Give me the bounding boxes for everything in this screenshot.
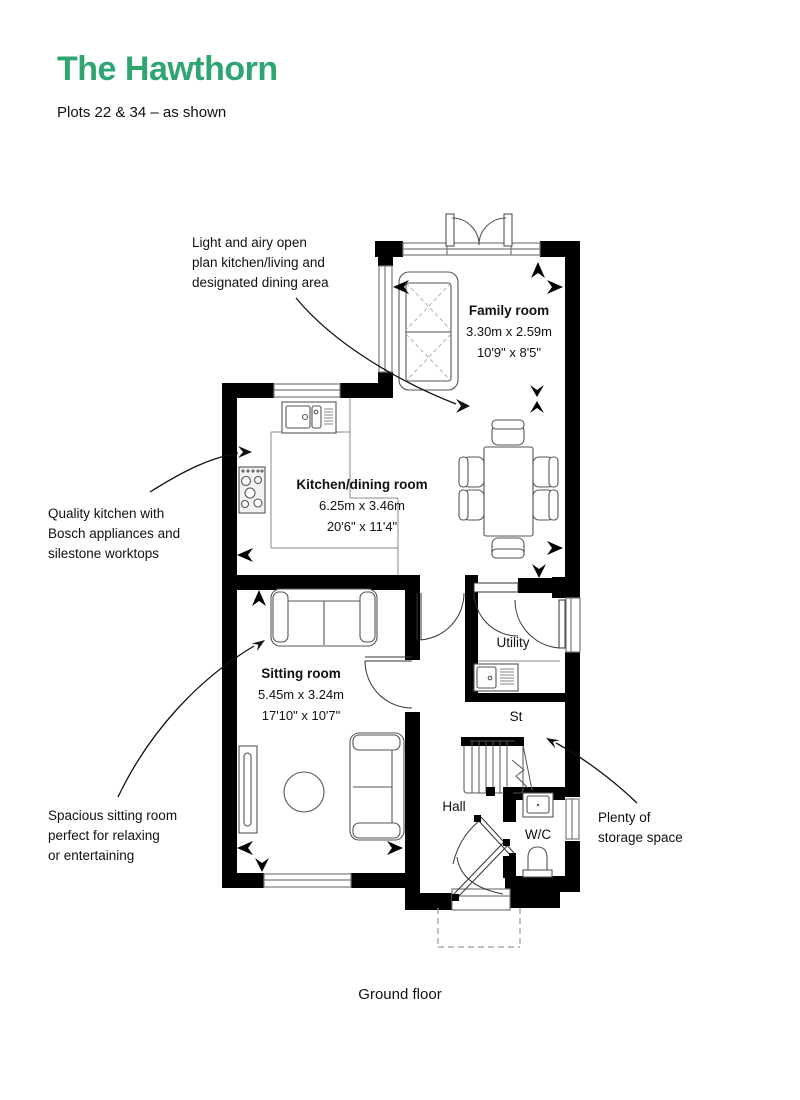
- window-family-left: [379, 266, 392, 372]
- dining-table: [459, 420, 558, 558]
- porch-outline: [438, 908, 520, 947]
- annotation-kitchen-quality: Quality kitchen with Bosch appliances an…: [48, 504, 180, 564]
- wc-basin: [523, 793, 553, 817]
- entrance-door-sill: [452, 889, 510, 910]
- annotation-open-plan: Light and airy open plan kitchen/living …: [192, 233, 329, 293]
- window-sitting: [264, 874, 351, 887]
- door-utility: [474, 583, 518, 636]
- window-kitchen: [274, 384, 340, 397]
- kitchen-metric: 6.25m x 3.46m: [296, 495, 427, 516]
- window-wc: [566, 799, 579, 839]
- family-room-imperial: 10'9" x 8'5": [466, 342, 552, 363]
- french-doors: [446, 214, 512, 246]
- window-family-top: [403, 243, 540, 255]
- annotation-sitting-space: Spacious sitting room perfect for relaxi…: [48, 806, 177, 866]
- label-kitchen: Kitchen/dining room 6.25m x 3.46m 20'6" …: [296, 474, 427, 537]
- door-kitchen-hall: [417, 593, 464, 640]
- coffee-table: [284, 772, 324, 812]
- brochure-page: The Hawthorn Plots 22 & 34 – as shown: [0, 0, 800, 1100]
- kitchen-name: Kitchen/dining room: [296, 474, 427, 495]
- label-store: St: [510, 709, 523, 724]
- annotation-arrows: [118, 298, 637, 803]
- kitchen-imperial: 20'6" x 11'4": [296, 516, 427, 537]
- sitting-room-imperial: 17'10" x 10'7": [258, 705, 344, 726]
- label-utility: Utility: [497, 635, 530, 650]
- kitchen-sink: [282, 402, 336, 433]
- family-room-metric: 3.30m x 2.59m: [466, 321, 552, 342]
- family-sofa: [399, 272, 458, 390]
- label-hall: Hall: [442, 799, 465, 814]
- door-frame-utility-external: [566, 598, 580, 652]
- hob: [239, 467, 265, 513]
- wc-toilet: [523, 847, 552, 877]
- door-sitting: [365, 657, 412, 708]
- sitting-room-name: Sitting room: [258, 663, 344, 684]
- annotation-storage: Plenty of storage space: [598, 808, 683, 848]
- sitting-sofa-right: [350, 733, 404, 840]
- sitting-room-metric: 5.45m x 3.24m: [258, 684, 344, 705]
- sitting-sofa-top: [271, 589, 377, 646]
- floor-label: Ground floor: [358, 986, 441, 1003]
- family-room-name: Family room: [466, 300, 552, 321]
- utility-sink: [474, 661, 560, 691]
- label-sitting-room: Sitting room 5.45m x 3.24m 17'10" x 10'7…: [258, 663, 344, 726]
- label-wc: W/C: [525, 827, 551, 842]
- radiator: [239, 746, 257, 833]
- label-family-room: Family room 3.30m x 2.59m 10'9" x 8'5": [466, 300, 552, 363]
